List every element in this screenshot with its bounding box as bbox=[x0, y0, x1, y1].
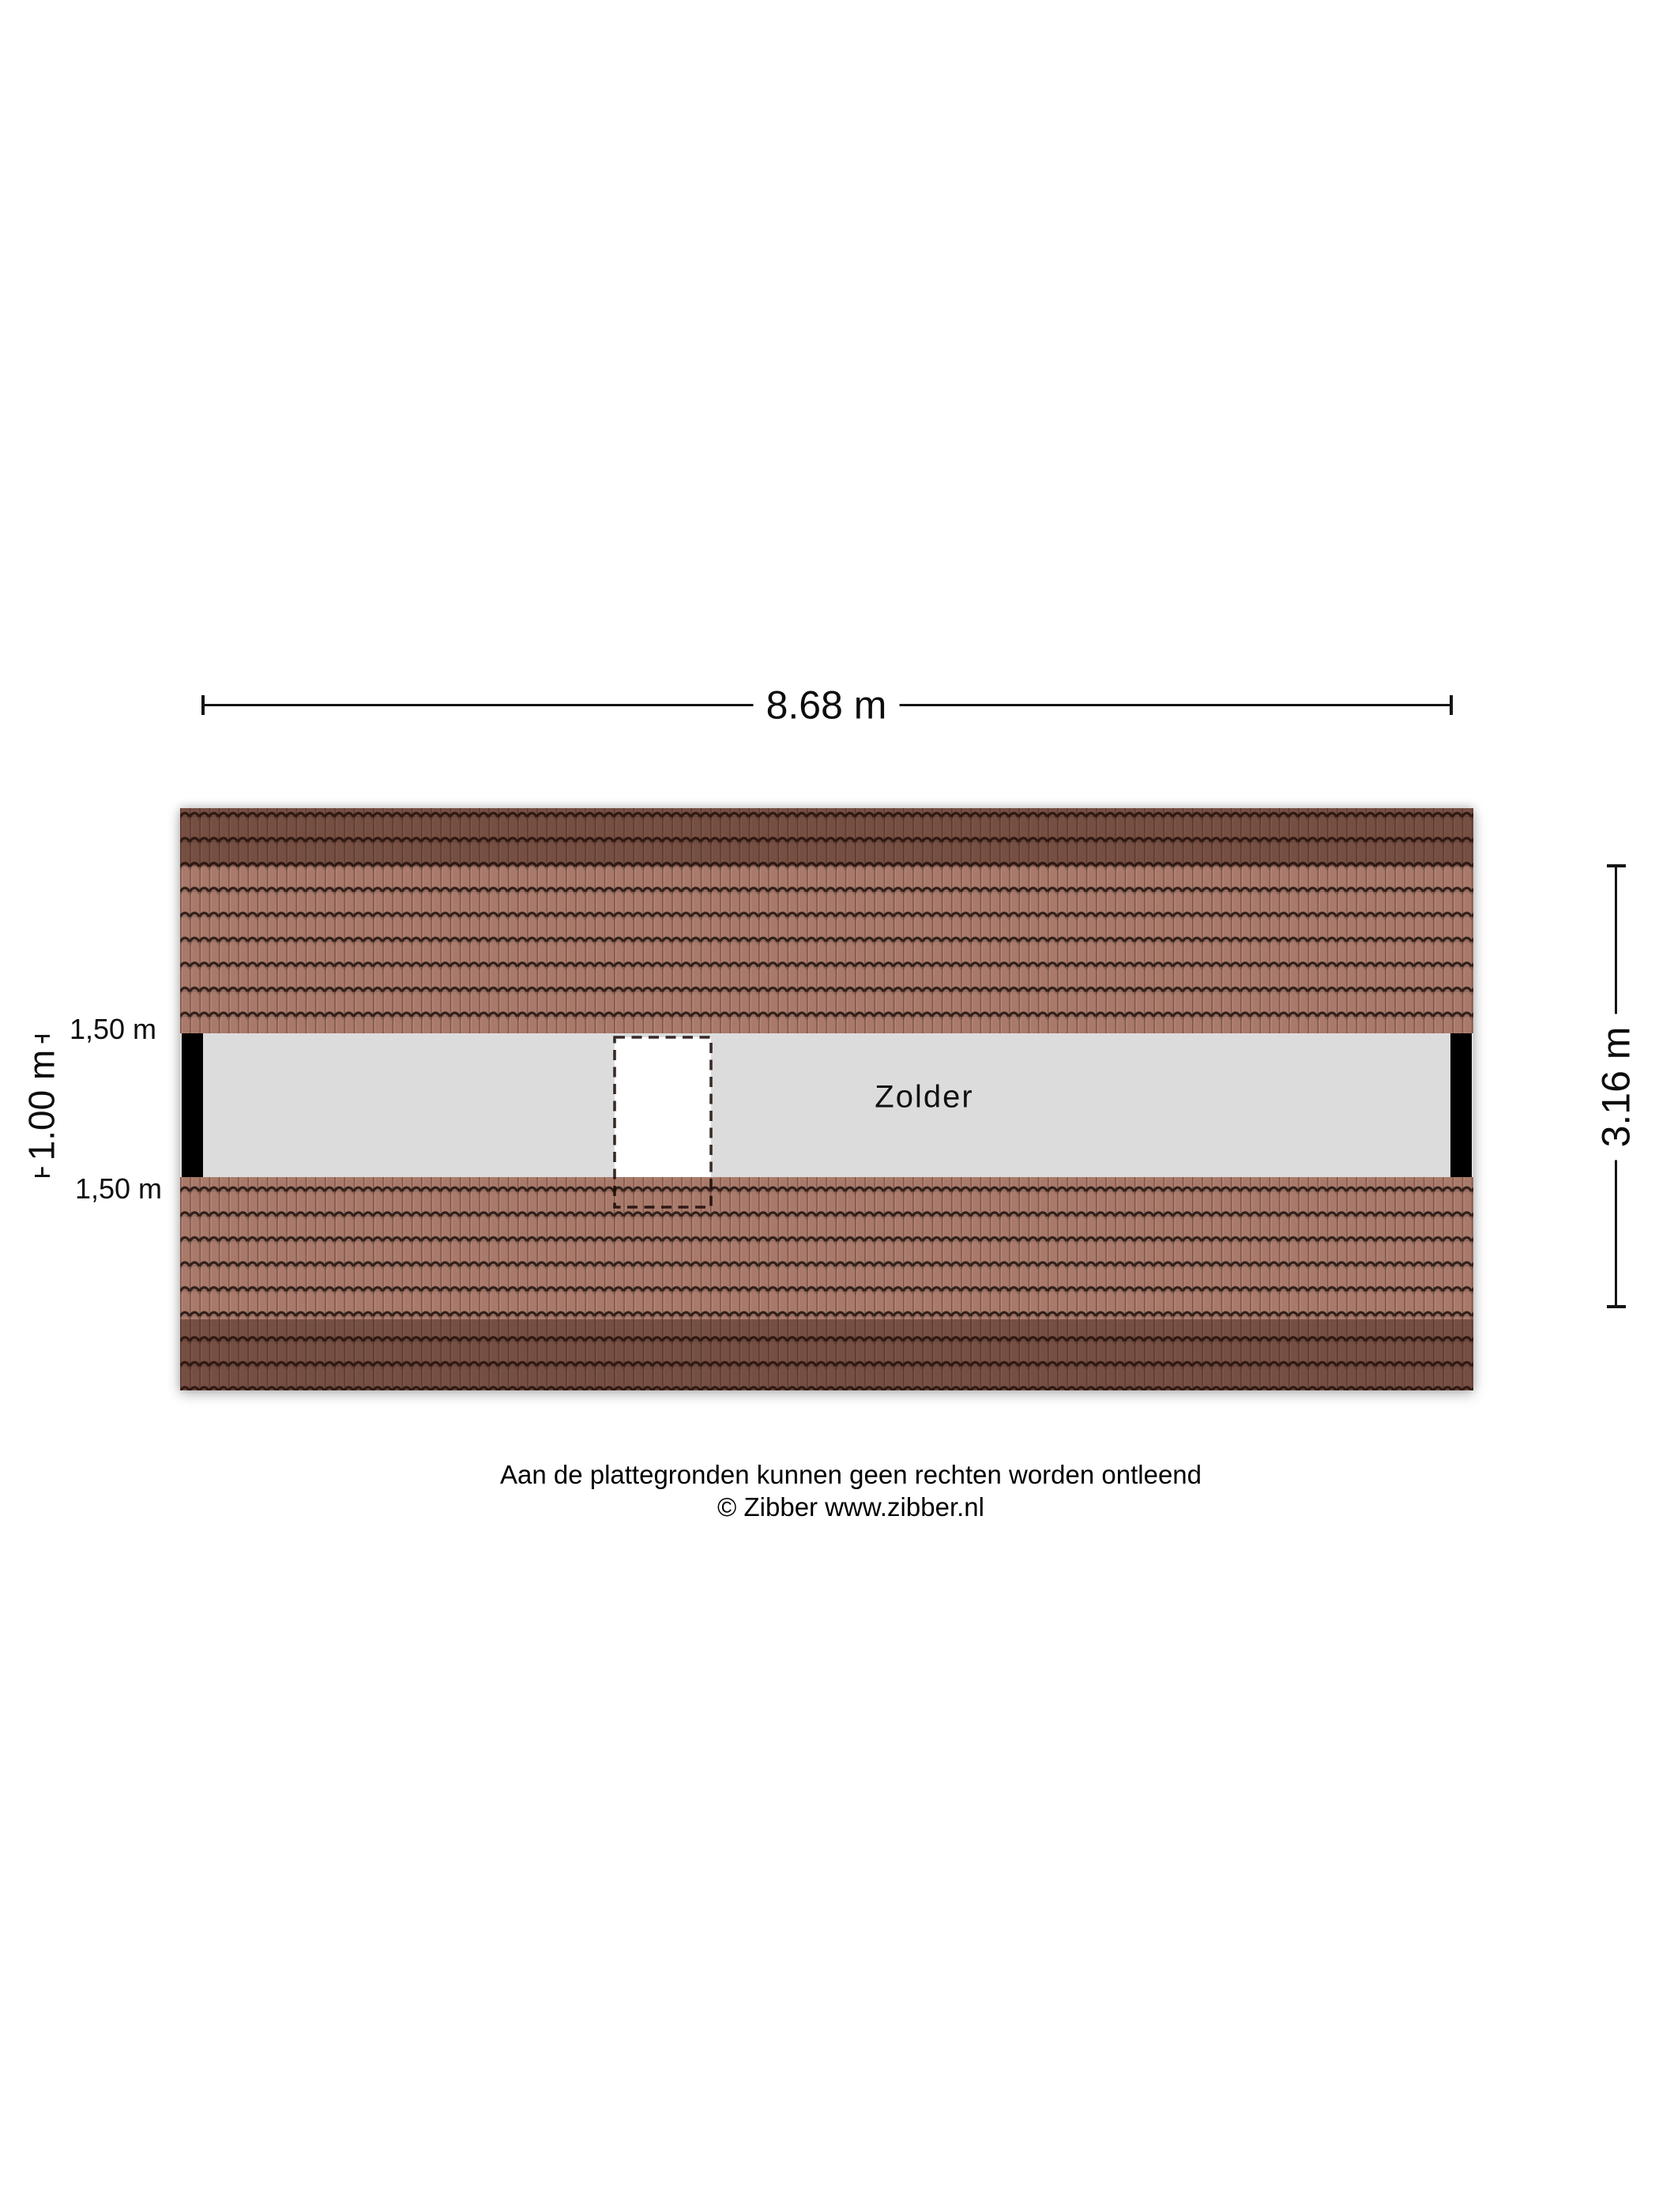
clearance-label-top: 1,50 m bbox=[70, 1013, 156, 1046]
width-dimension-tick-right bbox=[1450, 695, 1453, 715]
footer-disclaimer: Aan de plattegronden kunnen geen rechten… bbox=[21, 1458, 1659, 1491]
width-dimension-tick-left bbox=[201, 695, 205, 715]
height-dimension-tick-top bbox=[1607, 864, 1626, 867]
attic-floor bbox=[180, 1033, 1473, 1177]
height-dimension-label: 3.16 m bbox=[1593, 1014, 1639, 1161]
footer-copyright: © Zibber www.zibber.nl bbox=[21, 1491, 1659, 1523]
stair-opening bbox=[615, 1037, 711, 1177]
wall-right bbox=[1450, 1033, 1472, 1177]
room-label: Zolder bbox=[875, 1080, 973, 1115]
wall-left bbox=[182, 1033, 203, 1177]
inner-height-dimension-tick-bottom bbox=[35, 1175, 50, 1177]
roof-plan bbox=[180, 808, 1473, 1390]
inner-height-dimension-tick-top bbox=[35, 1035, 50, 1037]
clearance-label-bottom: 1,50 m bbox=[75, 1172, 162, 1206]
roof-shade-bottom bbox=[180, 1319, 1473, 1390]
footer: Aan de plattegronden kunnen geen rechten… bbox=[0, 1458, 1659, 1523]
height-dimension-tick-bottom bbox=[1607, 1305, 1626, 1308]
inner-height-dimension-label: 1.00 m bbox=[21, 1044, 63, 1168]
roof-plan-svg bbox=[180, 808, 1473, 1390]
roof-shade-top bbox=[180, 808, 1473, 866]
width-dimension-label: 8.68 m bbox=[754, 683, 900, 728]
floorplan-canvas: Zolder 8.68 m 3.16 m 1.00 m 1,50 m 1,50 … bbox=[0, 0, 1659, 2212]
